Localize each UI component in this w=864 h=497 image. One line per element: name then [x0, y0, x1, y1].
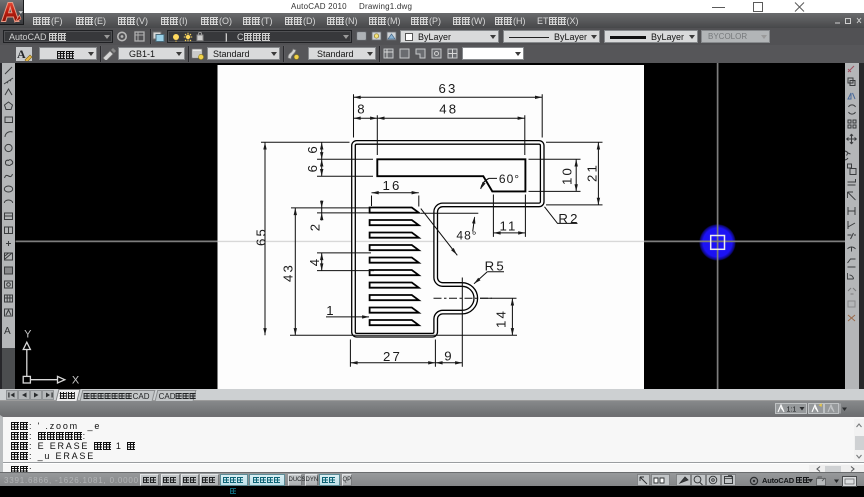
svg-text:65: 65 [254, 227, 269, 246]
svg-text:1: 1 [326, 303, 336, 318]
svg-text:48°: 48° [456, 229, 477, 243]
svg-text:9: 9 [444, 348, 454, 363]
svg-text:R5: R5 [485, 258, 506, 273]
svg-text:Y: Y [24, 329, 32, 341]
svg-text:11: 11 [499, 218, 517, 233]
svg-text:16: 16 [382, 178, 401, 193]
svg-text:6: 6 [305, 144, 320, 154]
svg-text:14: 14 [494, 309, 509, 328]
svg-text:27: 27 [383, 349, 402, 364]
svg-text:6: 6 [305, 163, 320, 173]
svg-text:A: A [17, 47, 26, 61]
svg-text:8: 8 [357, 102, 367, 117]
svg-text:43: 43 [281, 263, 296, 282]
svg-text:R2: R2 [558, 211, 579, 226]
svg-text:48: 48 [439, 102, 458, 117]
svg-text:60°: 60° [499, 172, 520, 186]
svg-text:4: 4 [307, 257, 322, 267]
svg-text:X: X [72, 375, 80, 387]
svg-text:63: 63 [438, 81, 457, 96]
svg-text:21: 21 [585, 163, 600, 182]
svg-text:A: A [4, 326, 11, 337]
svg-text:1:1: 1:1 [787, 407, 797, 414]
svg-text:10: 10 [560, 166, 575, 185]
svg-text:2: 2 [308, 222, 323, 232]
